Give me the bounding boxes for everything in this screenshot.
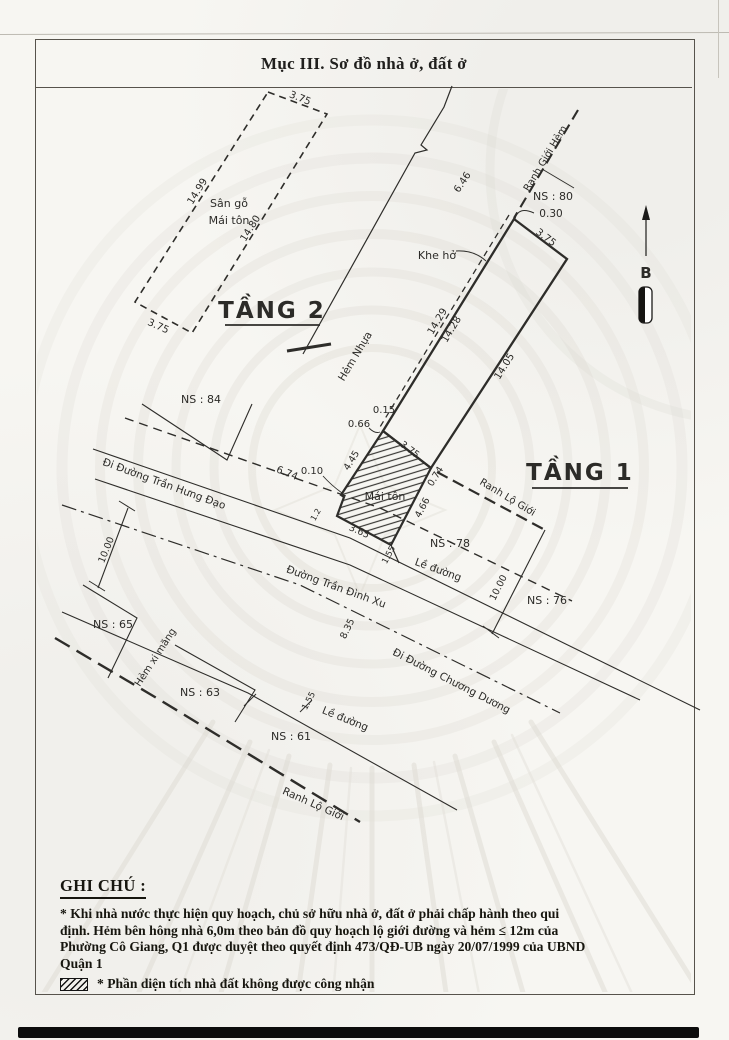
notes-line: * Khi nhà nước thực hiện quy hoạch, chủ …	[60, 906, 670, 923]
label-mai-ton-upper: Mái tôn	[209, 214, 250, 227]
tick	[244, 694, 256, 706]
scan-artifact-bar	[18, 1027, 699, 1038]
dim-rect-top: 3.75	[288, 89, 313, 108]
dim-jog-side: 1.2	[309, 507, 323, 523]
label-ns84: NS : 84	[181, 393, 221, 406]
label-mai-ton-main: Mái tôn	[365, 490, 406, 503]
notes-line: Quận 1	[60, 956, 670, 973]
label-ns63: NS : 63	[180, 686, 220, 699]
hatch-legend-swatch	[60, 978, 88, 991]
dim-066-leader	[369, 428, 380, 433]
label-north-b: B	[640, 264, 651, 282]
label-tang-2: TẦNG 2	[218, 293, 326, 324]
legend-text: * Phần diện tích nhà đất không được công…	[97, 976, 374, 992]
dim-010-leader	[323, 476, 342, 493]
label-ns78: NS : 78	[430, 537, 470, 550]
label-san-go: Sân gỗ	[210, 197, 248, 210]
label-ns76: NS : 76	[527, 594, 567, 607]
label-ns65: NS : 65	[93, 618, 133, 631]
label-chuong-duong: Đi Đường Chương Dương	[391, 646, 513, 716]
label-khe-ho: Khe hở	[418, 249, 456, 262]
bold-tick	[287, 344, 331, 351]
label-tran-hung-dao: Đi Đường Trần Hưng Đạo	[101, 456, 227, 512]
dim-030-leader	[515, 211, 534, 219]
label-ns61: NS : 61	[271, 730, 311, 743]
notes-line: Phường Cô Giang, Q1 được duyệt theo quyế…	[60, 939, 670, 956]
north-arrow-head	[642, 205, 650, 220]
ns84-bracket	[142, 404, 252, 460]
notes-body: * Khi nhà nước thực hiện quy hoạch, chủ …	[60, 906, 670, 972]
label-tang-1: TẦNG 1	[526, 455, 634, 486]
label-hem-nhua: Hẻm Nhựa	[336, 330, 375, 384]
dim-gap-bottom: 0.15	[373, 405, 395, 416]
notes-section: GHI CHÚ : * Khi nhà nước thực hiện quy h…	[60, 876, 670, 992]
notes-heading: GHI CHÚ :	[60, 876, 146, 899]
dim-jog: 0.10	[301, 466, 323, 477]
label-le-duong-south: Lề đường	[320, 705, 370, 734]
dim-corner-offset: 0.66	[348, 419, 370, 430]
dim-gap-top: 0.30	[539, 208, 562, 220]
label-ns80: NS : 80	[533, 190, 573, 203]
legend-row: * Phần diện tích nhà đất không được công…	[60, 976, 670, 992]
notes-line: định. Hẻm bên hông nhà 6,0m theo bản đồ …	[60, 923, 670, 940]
dim-frontage: 6.74	[275, 464, 300, 483]
